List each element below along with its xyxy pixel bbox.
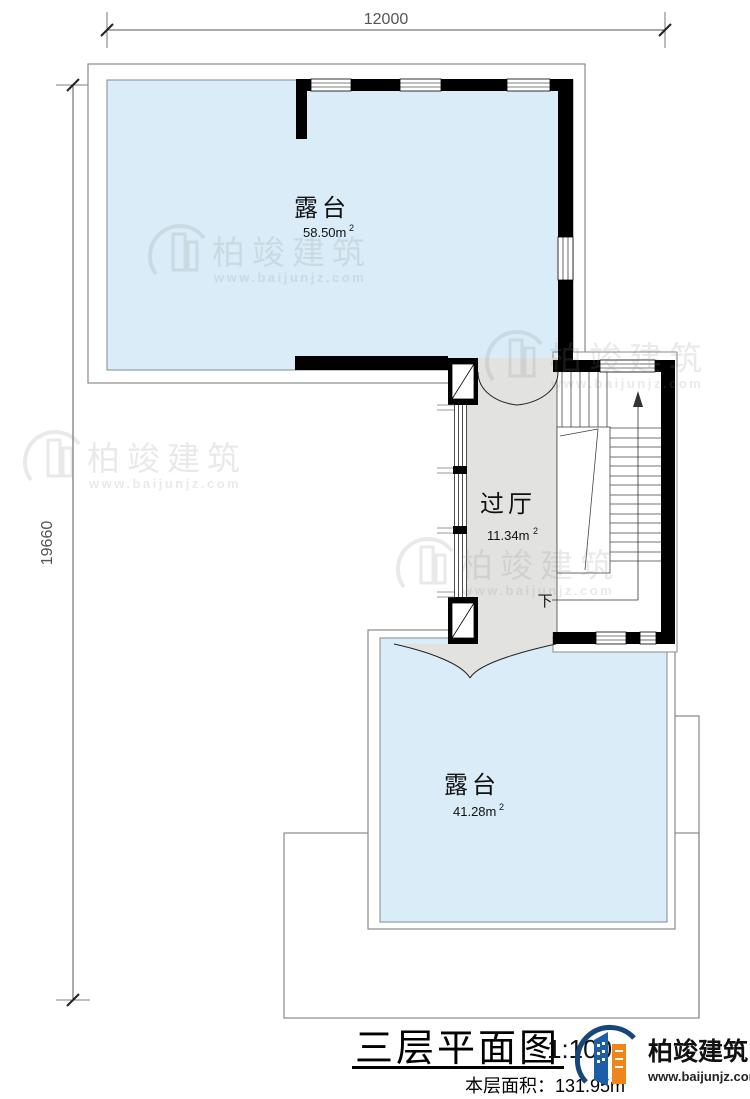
room-label-terrace-bottom: 露台 41.28m 2 — [444, 772, 504, 819]
room-area-sup: 2 — [533, 526, 538, 536]
room-name: 过厅 — [480, 491, 536, 518]
terrace-top-block — [88, 64, 585, 383]
title-underline — [352, 1066, 564, 1069]
brand-logo-url: www.baijunjz.com — [647, 1069, 750, 1084]
plan-title: 三层平面图 — [355, 1028, 560, 1070]
floorplan-page: 柏竣建筑 www.baijunjz.com 12000 19660 — [0, 0, 750, 1099]
floorplan-drawing: 柏竣建筑 www.baijunjz.com 12000 19660 — [0, 0, 750, 1099]
brand-logo-name: 柏竣建筑 — [648, 1037, 748, 1066]
room-name: 露台 — [294, 195, 350, 222]
room-area-sup: 2 — [349, 223, 354, 233]
room-area-sup: 2 — [499, 802, 504, 812]
terrace-bottom-block — [368, 630, 675, 929]
room-name: 露台 — [444, 772, 500, 799]
room-area: 11.34m — [487, 528, 529, 543]
room-label-hall: 过厅 11.34m 2 — [480, 491, 538, 543]
room-area: 41.28m — [453, 804, 496, 819]
dimension-top-label: 12000 — [364, 11, 409, 28]
dimension-left-label: 19660 — [39, 521, 56, 566]
room-label-terrace-top: 露台 58.50m 2 — [294, 195, 354, 240]
room-area: 58.50m — [303, 225, 346, 240]
terrace-bottom-floor — [380, 638, 667, 922]
